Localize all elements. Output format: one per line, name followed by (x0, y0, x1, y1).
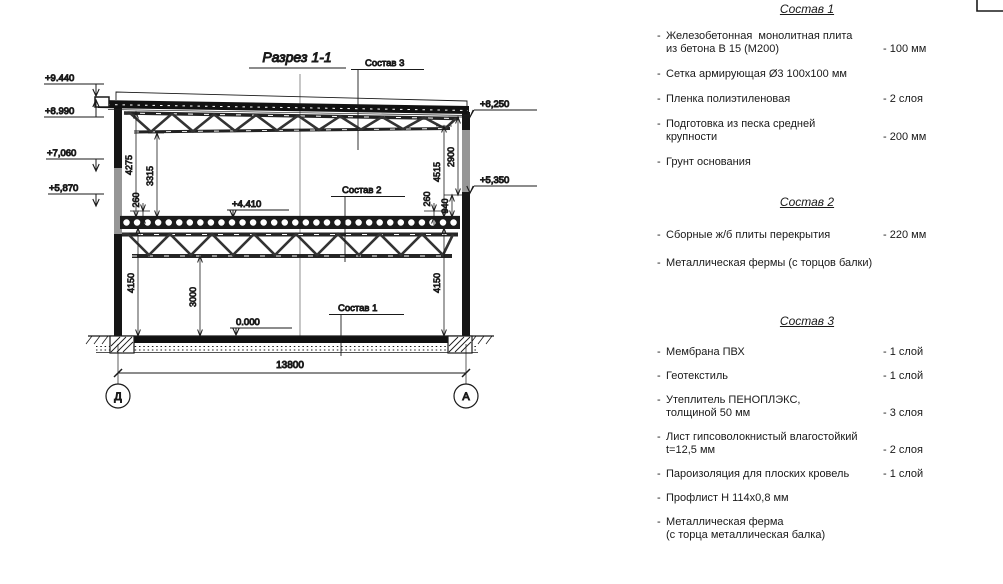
item-name: Металлическая фермы (с торцов балки) (666, 257, 879, 270)
axis-letter: А (462, 391, 470, 403)
dimension: 4150 (432, 228, 446, 336)
dimension-value: 3000 (188, 287, 198, 307)
section-title-text: Разрез 1-1 (262, 49, 331, 65)
composition-leaders: Состав 3 Состав 2 Состав 1 (329, 58, 424, 356)
elevation-mark: +5,870 (48, 183, 104, 206)
elevation-mark: +9.440 (44, 73, 104, 96)
elevation-value: +8.990 (45, 106, 74, 117)
item-name: Геотекстиль (666, 370, 879, 383)
item-value: - 220 мм (879, 229, 957, 242)
leader-sostav-3: Состав 3 (351, 58, 424, 150)
elevation-value: +5,350 (480, 175, 509, 186)
axis-letter: Д (114, 391, 122, 403)
building-section (86, 92, 494, 353)
section-heading: Состав 3 (657, 314, 957, 328)
item-value: - 100 мм (879, 43, 957, 56)
item-value: - 200 мм (879, 131, 957, 144)
elevation-value: 0.000 (236, 317, 260, 328)
list-item: - Сборные ж/б плиты перекрытия - 220 мм (657, 229, 957, 242)
section-heading: Состав 2 (657, 195, 957, 209)
list-item: - Пленка полиэтиленовая - 2 слоя (657, 93, 957, 106)
floor-slab (120, 217, 460, 229)
item-name: Пленка полиэтиленовая (666, 93, 879, 106)
item-name: Мембрана ПВХ (666, 346, 879, 359)
drawing-title: Разрез 1-1 (249, 49, 346, 68)
item-name: Пароизоляция для плоских кровель (666, 468, 879, 481)
list-item: - Пароизоляция для плоских кровель - 1 с… (657, 468, 957, 481)
item-dash: - (657, 370, 666, 383)
item-dash: - (657, 68, 666, 81)
list-item: - Сетка армирующая Ø3 100х100 мм (657, 68, 957, 81)
elevation-value: +7,060 (47, 148, 76, 159)
item-name: Сетка армирующая Ø3 100х100 мм (666, 68, 879, 81)
item-name: Подготовка из песка средней крупности (666, 118, 879, 144)
axis-bubble-right: А (454, 384, 478, 408)
elevation-mark: +4.410 (227, 199, 289, 217)
dimension-value: 4515 (432, 162, 442, 182)
item-dash: - (657, 229, 666, 242)
composition-section-3: Состав 3 - Мембрана ПВХ - 1 слой - Геоте… (657, 314, 957, 542)
overall-width-value: 13800 (276, 360, 304, 371)
ground-slab (86, 336, 494, 353)
dimension: 3000 (188, 256, 202, 336)
item-dash: - (657, 30, 666, 43)
item-dash: - (657, 93, 666, 106)
blueprint-page: Разрез 1-1 (0, 0, 1003, 584)
elevation-mark: +8,250 (467, 99, 537, 117)
dimension: 4150 (126, 228, 140, 336)
item-value: - 1 слой (879, 468, 957, 481)
list-item: - Металлическая фермы (с торцов балки) (657, 257, 957, 270)
axis-bubble-left: Д (106, 384, 130, 408)
item-dash: - (657, 257, 666, 270)
item-name: Лист гипсоволокнистый влагостойкий t=12,… (666, 431, 879, 457)
item-dash: - (657, 492, 666, 505)
item-name: Утеплитель ПЕНОПЛЭКС, толщиной 50 мм (666, 394, 879, 420)
elevation-value: +4.410 (232, 199, 261, 210)
leader-label: Состав 2 (342, 185, 381, 196)
floor-truss (122, 234, 458, 256)
composition-panel: Состав 1 - Железобетонная монолитная пли… (657, 2, 957, 553)
dimension: 3315 (145, 133, 159, 217)
list-item: - Утеплитель ПЕНОПЛЭКС, толщиной 50 мм -… (657, 394, 957, 420)
list-item: - Железобетонная монолитная плита из бет… (657, 30, 957, 56)
item-dash: - (657, 431, 666, 444)
item-name: Грунт основания (666, 156, 879, 169)
elevation-mark: +5,350 (467, 175, 537, 193)
item-name: Сборные ж/б плиты перекрытия (666, 229, 879, 242)
list-item: - Грунт основания (657, 156, 957, 169)
list-item: - Геотекстиль - 1 слой (657, 370, 957, 383)
list-item: - Лист гипсоволокнистый влагостойкий t=1… (657, 431, 957, 457)
elevation-value: +8,250 (480, 99, 509, 110)
item-dash: - (657, 118, 666, 131)
dimension-value: 4150 (126, 273, 136, 293)
leader-sostav-1: Состав 1 (329, 303, 404, 356)
dimension-value: 2900 (446, 147, 456, 167)
elevation-mark: +8.990 (44, 100, 104, 117)
list-item: - Металлическая ферма (с торца металличе… (657, 516, 957, 542)
item-name: Железобетонная монолитная плита из бетон… (666, 30, 879, 56)
sheet-frame-corner (977, 0, 1003, 11)
overall-dimension: 13800 Д А (106, 344, 478, 408)
elevation-value: +9.440 (45, 73, 74, 84)
item-dash: - (657, 394, 666, 407)
elevation-mark: 0.000 (230, 317, 292, 335)
leader-label: Состав 3 (365, 58, 404, 69)
list-item: - Профлист Н 114х0,8 мм (657, 492, 957, 505)
item-dash: - (657, 346, 666, 359)
item-value: - 2 слоя (879, 93, 957, 106)
composition-section-2: Состав 2 - Сборные ж/б плиты перекрытия … (657, 195, 957, 270)
item-value: - 3 слоя (879, 407, 957, 420)
composition-section-1: Состав 1 - Железобетонная монолитная пли… (657, 2, 957, 169)
item-dash: - (657, 516, 666, 529)
item-name: Профлист Н 114х0,8 мм (666, 492, 879, 505)
elevation-mark: +7,060 (46, 148, 104, 171)
dimension: 940 (440, 195, 454, 217)
dimension-value: 3315 (145, 166, 155, 186)
item-value: - 1 слой (879, 346, 957, 359)
dimension-value: 260 (422, 191, 432, 206)
list-item: - Подготовка из песка средней крупности … (657, 118, 957, 144)
foundation-right (448, 336, 472, 353)
dimension-value: 4150 (432, 273, 442, 293)
dimension-value: 4275 (124, 155, 134, 175)
item-value: - 2 слоя (879, 444, 957, 457)
dimension-value: 260 (131, 192, 141, 207)
elevation-value: +5,870 (49, 183, 78, 194)
foundation-left (110, 336, 134, 353)
leader-label: Состав 1 (338, 303, 377, 314)
roof-truss (124, 113, 459, 132)
item-value: - 1 слой (879, 370, 957, 383)
item-dash: - (657, 468, 666, 481)
wall-right (462, 112, 470, 344)
item-dash: - (657, 156, 666, 169)
list-item: - Мембрана ПВХ - 1 слой (657, 346, 957, 359)
section-heading: Состав 1 (657, 2, 957, 16)
item-name: Металлическая ферма (с торца металлическ… (666, 516, 879, 542)
